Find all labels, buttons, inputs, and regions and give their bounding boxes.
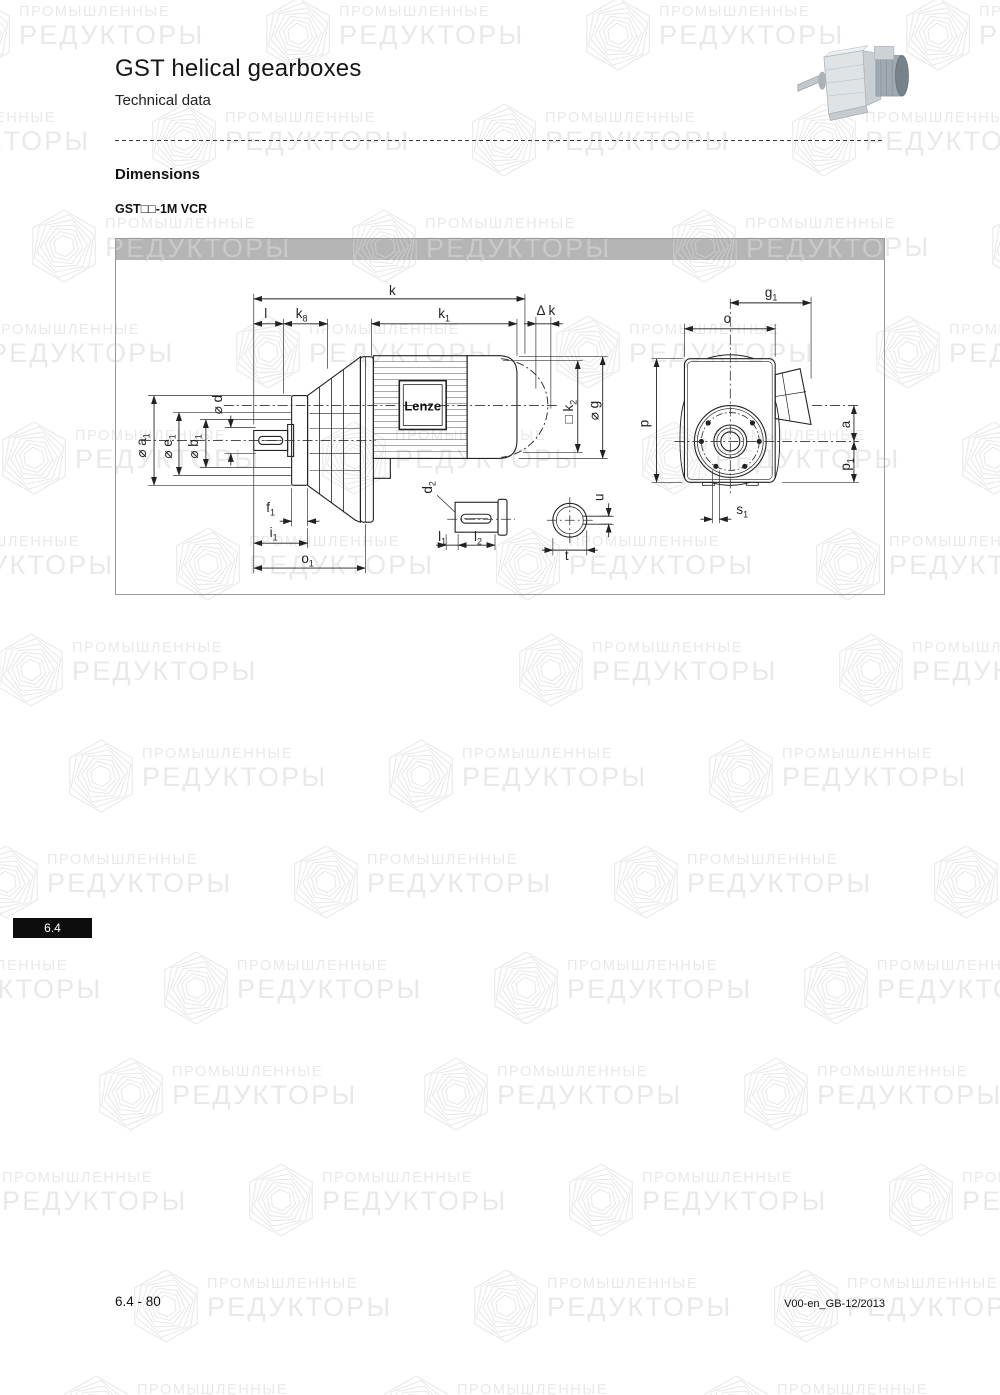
- dim-l: l: [264, 306, 267, 321]
- watermark-line2: РЕДУКТОРЫ: [0, 975, 102, 1003]
- watermark-line2: РЕДУКТОРЫ: [567, 975, 752, 1003]
- watermark-tile: ПРОМЫШЛЕННЫЕРЕДУКТОРЫ: [565, 1158, 827, 1242]
- watermark-logo-icon: [490, 946, 562, 1030]
- section-heading: Dimensions: [115, 166, 200, 183]
- side-view: [254, 356, 548, 523]
- watermark-line1: ПРОМЫШЛЕННЫЕ: [847, 1277, 1000, 1292]
- dimension-drawing: klk8k1Δ kg1o⌀ d⌀ a1⌀ e1⌀ b1□ k2⌀ gpap1s1…: [116, 260, 884, 594]
- watermark-line2: РЕДУКТОРЫ: [979, 21, 1000, 49]
- watermark-line2: РЕДУКТОРЫ: [19, 21, 204, 49]
- watermark-logo-icon: [28, 204, 100, 288]
- watermark-logo-icon: [515, 628, 587, 712]
- watermark-line2: РЕДУКТОРЫ: [426, 239, 611, 260]
- watermark-line2: РЕДУКТОРЫ: [339, 21, 524, 49]
- dim-k8: k8: [296, 306, 308, 323]
- watermark-line1: ПРОМЫШЛЕННЫЕ: [72, 641, 257, 656]
- watermark-tile: ПРОМЫШЛЕННЫЕРЕДУКТОРЫ: [835, 628, 1000, 712]
- dim-t: t: [565, 548, 569, 563]
- front-view: [680, 355, 811, 486]
- dim-u: u: [592, 494, 607, 501]
- watermark-tile: ПРОМЫШЛЕННЫЕРЕДУКТОРЫ: [800, 946, 1000, 1030]
- watermark-line1: ПРОМЫШЛЕННЫЕ: [0, 111, 90, 126]
- watermark-line2: РЕДУКТОРЫ: [687, 869, 872, 897]
- watermark-line2: РЕДУКТОРЫ: [72, 657, 257, 685]
- watermark-logo-icon: [95, 1052, 167, 1136]
- watermark-tile: ПРОМЫШЛЕННЫЕРЕДУКТОРЫ: [95, 1052, 357, 1136]
- dim-o: o: [724, 311, 731, 326]
- watermark-logo-icon: [669, 239, 741, 260]
- watermark-tile: ПРОМЫШЛЕННЫЕРЕДУКТОРЫ: [245, 1158, 507, 1242]
- watermark-tile: ПРОМЫШЛЕННЫЕРЕДУКТОРЫ: [872, 310, 1000, 394]
- watermark-line1: ПРОМЫШЛЕННЫЕ: [172, 1065, 357, 1080]
- model-type-label: GST□□-1M VCR: [115, 202, 207, 216]
- dim-e1: ⌀ e1: [160, 434, 177, 458]
- dim-b1: ⌀ b1: [186, 434, 203, 458]
- watermark-tile: ПРОМЫШЛЕННЫЕРЕДУКТОРЫ: [515, 628, 777, 712]
- watermark-line1: ПРОМЫШЛЕННЫЕ: [497, 1065, 682, 1080]
- watermark-line1: ПРОМЫШЛЕННЫЕ: [912, 641, 1000, 656]
- watermark-line1: ПРОМЫШЛЕННЫЕ: [47, 853, 232, 868]
- watermark-line1: ПРОМЫШЛЕННЫЕ: [817, 1065, 1000, 1080]
- watermark-tile: ПРОМЫШЛЕННЫЕРЕДУКТОРЫ: [705, 734, 967, 818]
- watermark-logo-icon: [740, 1052, 812, 1136]
- watermark-line2: РЕДУКТОРЫ: [116, 239, 291, 260]
- catalog-page: ПРОМЫШЛЕННЫЕРЕДУКТОРЫПРОМЫШЛЕННЫЕРЕДУКТО…: [0, 0, 1000, 1395]
- watermark-line1: ПРОМЫШЛЕННЫЕ: [322, 1171, 507, 1186]
- dim-i1: i1: [270, 525, 278, 542]
- watermark-line1: ПРОМЫШЛЕННЫЕ: [659, 5, 844, 20]
- watermark-line1: ПРОМЫШЛЕННЫЕ: [642, 1171, 827, 1186]
- watermark-tile: ПРОМЫШЛЕННЫЕРЕДУКТОРЫ: [0, 1158, 187, 1242]
- watermark-logo-icon: [380, 1370, 452, 1395]
- brand-logo-text: Lenze: [404, 399, 441, 414]
- watermark-line2: РЕДУКТОРЫ: [782, 763, 967, 791]
- watermark-line2: РЕДУКТОРЫ: [545, 127, 730, 155]
- page-title: GST helical gearboxes: [115, 55, 362, 83]
- watermark-line1: ПРОМЫШЛЕННЫЕ: [339, 5, 524, 20]
- watermark-line2: РЕДУКТОРЫ: [322, 1187, 507, 1215]
- watermark-tile: ПРОМЫШЛЕННЫЕРЕДУКТОРЫ: [885, 1158, 1000, 1242]
- watermark-line1: ПРОМЫШЛЕННЫЕ: [979, 5, 1000, 20]
- watermark-line1: ПРОМЫШЛЕННЫЕ: [782, 747, 967, 762]
- page-number: 6.4 - 80: [115, 1294, 161, 1309]
- watermark-line2: РЕДУКТОРЫ: [142, 763, 327, 791]
- watermark-line2: РЕДУКТОРЫ: [237, 975, 422, 1003]
- watermark-line2: РЕДУКТОРЫ: [889, 551, 1000, 579]
- dim-k: k: [389, 283, 396, 298]
- watermark-tile: ПРОМЫШЛЕННЫЕРЕДУКТОРЫ: [988, 204, 1000, 288]
- watermark-tile: ПРОМЫШЛЕННЫЕРЕДУКТОРЫ: [349, 239, 611, 260]
- watermark-line2: РЕДУКТОРЫ: [47, 869, 232, 897]
- watermark-tile: ПРОМЫШЛЕННЫЕРЕДУКТОРЫ: [65, 734, 327, 818]
- dim-g: ⌀ g: [587, 401, 602, 420]
- watermark-logo-icon: [65, 734, 137, 818]
- page-subtitle: Technical data: [115, 92, 211, 109]
- watermark-tile: ПРОМЫШЛЕННЫЕРЕДУКТОРЫ: [610, 840, 872, 924]
- watermark-line1: ПРОМЫШЛЕННЫЕ: [777, 1383, 962, 1395]
- dim-g1: g1: [765, 285, 777, 302]
- watermark-line1: ПРОМЫШЛЕННЫЕ: [457, 1383, 642, 1395]
- watermark-tile: ПРОМЫШЛЕННЫЕРЕДУКТОРЫ: [930, 840, 1000, 924]
- watermark-tile: ПРОМЫШЛЕННЫЕРЕДУКТОРЫ: [700, 1370, 962, 1395]
- dim-delta-k: Δ k: [537, 303, 556, 318]
- watermark-logo-icon: [582, 0, 654, 76]
- watermark-logo-icon: [705, 734, 777, 818]
- watermark-line2: РЕДУКТОРЫ: [172, 1081, 357, 1109]
- watermark-logo-icon: [0, 416, 70, 500]
- dimension-drawing-box: ПРОМЫШЛЕННЫЕРЕДУКТОРЫПРОМЫШЛЕННЫЕРЕДУКТО…: [115, 238, 885, 595]
- dim-f1: f1: [266, 500, 275, 517]
- watermark-tile: ПРОМЫШЛЕННЫЕРЕДУКТОРЫ: [420, 1052, 682, 1136]
- watermark-logo-icon: [800, 946, 872, 1030]
- document-version: V00-en_GB-12/2013: [784, 1298, 885, 1310]
- watermark-line2: РЕДУКТОРЫ: [746, 239, 884, 260]
- watermark-tile: ПРОМЫШЛЕННЫЕРЕДУКТОРЫ: [290, 840, 552, 924]
- watermark-line1: ПРОМЫШЛЕННЫЕ: [137, 1383, 322, 1395]
- watermark-line2: РЕДУКТОРЫ: [547, 1293, 732, 1321]
- watermark-tile: ПРОМЫШЛЕННЫЕРЕДУКТОРЫ: [902, 0, 1000, 76]
- dim-a: a: [838, 420, 853, 428]
- watermark-line1: ПРОМЫШЛЕННЫЕ: [545, 111, 730, 126]
- watermark-line2: РЕДУКТОРЫ: [592, 657, 777, 685]
- watermark-logo-icon: [610, 840, 682, 924]
- watermark-tile: ПРОМЫШЛЕННЫЕРЕДУКТОРЫ: [490, 946, 752, 1030]
- watermark-line1: ПРОМЫШЛЕННЫЕ: [547, 1277, 732, 1292]
- watermark-line1: ПРОМЫШЛЕННЫЕ: [962, 1171, 1000, 1186]
- watermark-line1: ПРОМЫШЛЕННЫЕ: [877, 959, 1000, 974]
- watermark-tile: ПРОМЫШЛЕННЫЕРЕДУКТОРЫ: [0, 98, 90, 182]
- watermark-tile: ПРОМЫШЛЕННЫЕРЕДУКТОРЫ: [0, 840, 232, 924]
- chapter-tab: 6.4: [13, 918, 92, 938]
- watermark-logo-icon: [958, 416, 1000, 500]
- watermark-line2: РЕДУКТОРЫ: [912, 657, 1000, 685]
- watermark-line1: ПРОМЫШЛЕННЫЕ: [367, 853, 552, 868]
- watermark-tile: ПРОМЫШЛЕННЫЕРЕДУКТОРЫ: [470, 1264, 732, 1348]
- watermark-line1: ПРОМЫШЛЕННЫЕ: [425, 217, 610, 232]
- watermark-line1: ПРОМЫШЛЕННЫЕ: [949, 323, 1000, 338]
- watermark-line2: РЕДУКТОРЫ: [462, 763, 647, 791]
- watermark-line1: ПРОМЫШЛЕННЫЕ: [225, 111, 410, 126]
- watermark-line2: РЕДУКТОРЫ: [0, 127, 90, 155]
- watermark-tile: ПРОМЫШЛЕННЫЕРЕДУКТОРЫ: [740, 1052, 1000, 1136]
- drawing-header-bar: ПРОМЫШЛЕННЫЕРЕДУКТОРЫПРОМЫШЛЕННЫЕРЕДУКТО…: [116, 239, 884, 260]
- watermark-line2: РЕДУКТОРЫ: [225, 127, 410, 155]
- watermark-line2: РЕДУКТОРЫ: [207, 1293, 392, 1321]
- watermark-logo-icon: [160, 946, 232, 1030]
- watermark-logo-icon: [245, 1158, 317, 1242]
- watermark-line2: РЕДУКТОРЫ: [642, 1187, 827, 1215]
- watermark-logo-icon: [885, 1158, 957, 1242]
- watermark-logo-icon: [60, 1370, 132, 1395]
- watermark-tile: ПРОМЫШЛЕННЫЕРЕДУКТОРЫ: [0, 628, 257, 712]
- watermark-logo-icon: [565, 1158, 637, 1242]
- watermark-logo-icon: [470, 1264, 542, 1348]
- watermark-line2: РЕДУКТОРЫ: [497, 1081, 682, 1109]
- dim-k1: k1: [438, 306, 450, 323]
- watermark-logo-icon: [930, 840, 1000, 924]
- dashed-separator: [115, 140, 885, 141]
- watermark-line1: ПРОМЫШЛЕННЫЕ: [0, 535, 114, 550]
- watermark-line2: РЕДУКТОРЫ: [877, 975, 1000, 1003]
- watermark-line1: ПРОМЫШЛЕННЫЕ: [592, 641, 777, 656]
- watermark-line2: РЕДУКТОРЫ: [2, 1187, 187, 1215]
- watermark-line2: РЕДУКТОРЫ: [817, 1081, 1000, 1109]
- dim-a1: ⌀ a1: [134, 433, 151, 457]
- dim-d2: d2: [420, 481, 437, 493]
- watermark-line2: РЕДУКТОРЫ: [962, 1187, 1000, 1215]
- watermark-tile: ПРОМЫШЛЕННЫЕРЕДУКТОРЫ: [669, 239, 884, 260]
- watermark-logo-icon: [835, 628, 907, 712]
- watermark-logo-icon: [385, 734, 457, 818]
- watermark-line2: РЕДУКТОРЫ: [949, 339, 1000, 367]
- watermark-line1: ПРОМЫШЛЕННЫЕ: [889, 535, 1000, 550]
- watermark-logo-icon: [420, 1052, 492, 1136]
- watermark-tile: ПРОМЫШЛЕННЫЕРЕДУКТОРЫ: [116, 239, 291, 260]
- watermark-logo-icon: [349, 239, 421, 260]
- dim-o1: o1: [301, 551, 313, 568]
- watermark-line2: РЕДУКТОРЫ: [367, 869, 552, 897]
- watermark-logo-icon: [0, 628, 67, 712]
- watermark-tile: ПРОМЫШЛЕННЫЕРЕДУКТОРЫ: [0, 946, 102, 1030]
- watermark-line1: ПРОМЫШЛЕННЫЕ: [142, 747, 327, 762]
- watermark-tile: ПРОМЫШЛЕННЫЕРЕДУКТОРЫ: [0, 522, 114, 606]
- watermark-tile: ПРОМЫШЛЕННЫЕРЕДУКТОРЫ: [958, 416, 1000, 500]
- watermark-line1: ПРОМЫШЛЕННЫЕ: [19, 5, 204, 20]
- dim-k2: □ k2: [561, 400, 578, 424]
- watermark-line1: ПРОМЫШЛЕННЫЕ: [567, 959, 752, 974]
- watermark-line1: ПРОМЫШЛЕННЫЕ: [2, 1171, 187, 1186]
- dim-d: ⌀ d: [210, 395, 225, 414]
- shaft-detail-views: [437, 495, 611, 537]
- watermark-line1: ПРОМЫШЛЕННЫЕ: [0, 959, 102, 974]
- watermark-logo-icon: [700, 1370, 772, 1395]
- watermark-line1: ПРОМЫШЛЕННЫЕ: [462, 747, 647, 762]
- product-photo-gearbox: [793, 33, 915, 125]
- dim-s1: s1: [736, 502, 748, 519]
- watermark-tile: ПРОМЫШЛЕННЫЕРЕДУКТОРЫ: [60, 1370, 322, 1395]
- watermark-line1: ПРОМЫШЛЕННЫЕ: [207, 1277, 392, 1292]
- watermark-tile: ПРОМЫШЛЕННЫЕРЕДУКТОРЫ: [385, 734, 647, 818]
- watermark-line2: РЕДУКТОРЫ: [0, 551, 114, 579]
- watermark-tile: ПРОМЫШЛЕННЫЕРЕДУКТОРЫ: [160, 946, 422, 1030]
- watermark-logo-icon: [290, 840, 362, 924]
- watermark-line1: ПРОМЫШЛЕННЫЕ: [687, 853, 872, 868]
- watermark-line1: ПРОМЫШЛЕННЫЕ: [745, 217, 930, 232]
- watermark-logo-icon: [0, 840, 42, 924]
- dim-p1: p1: [838, 458, 855, 470]
- watermark-line2: РЕДУКТОРЫ: [865, 127, 1000, 155]
- watermark-line1: ПРОМЫШЛЕННЫЕ: [105, 217, 290, 232]
- dim-l1: l1: [438, 529, 446, 546]
- watermark-tile: ПРОМЫШЛЕННЫЕРЕДУКТОРЫ: [130, 1264, 392, 1348]
- watermark-logo-icon: [0, 0, 14, 76]
- watermark-tile: ПРОМЫШЛЕННЫЕРЕДУКТОРЫ: [380, 1370, 642, 1395]
- watermark-line1: ПРОМЫШЛЕННЫЕ: [237, 959, 422, 974]
- watermark-logo-icon: [988, 204, 1000, 288]
- dim-p: p: [637, 420, 652, 427]
